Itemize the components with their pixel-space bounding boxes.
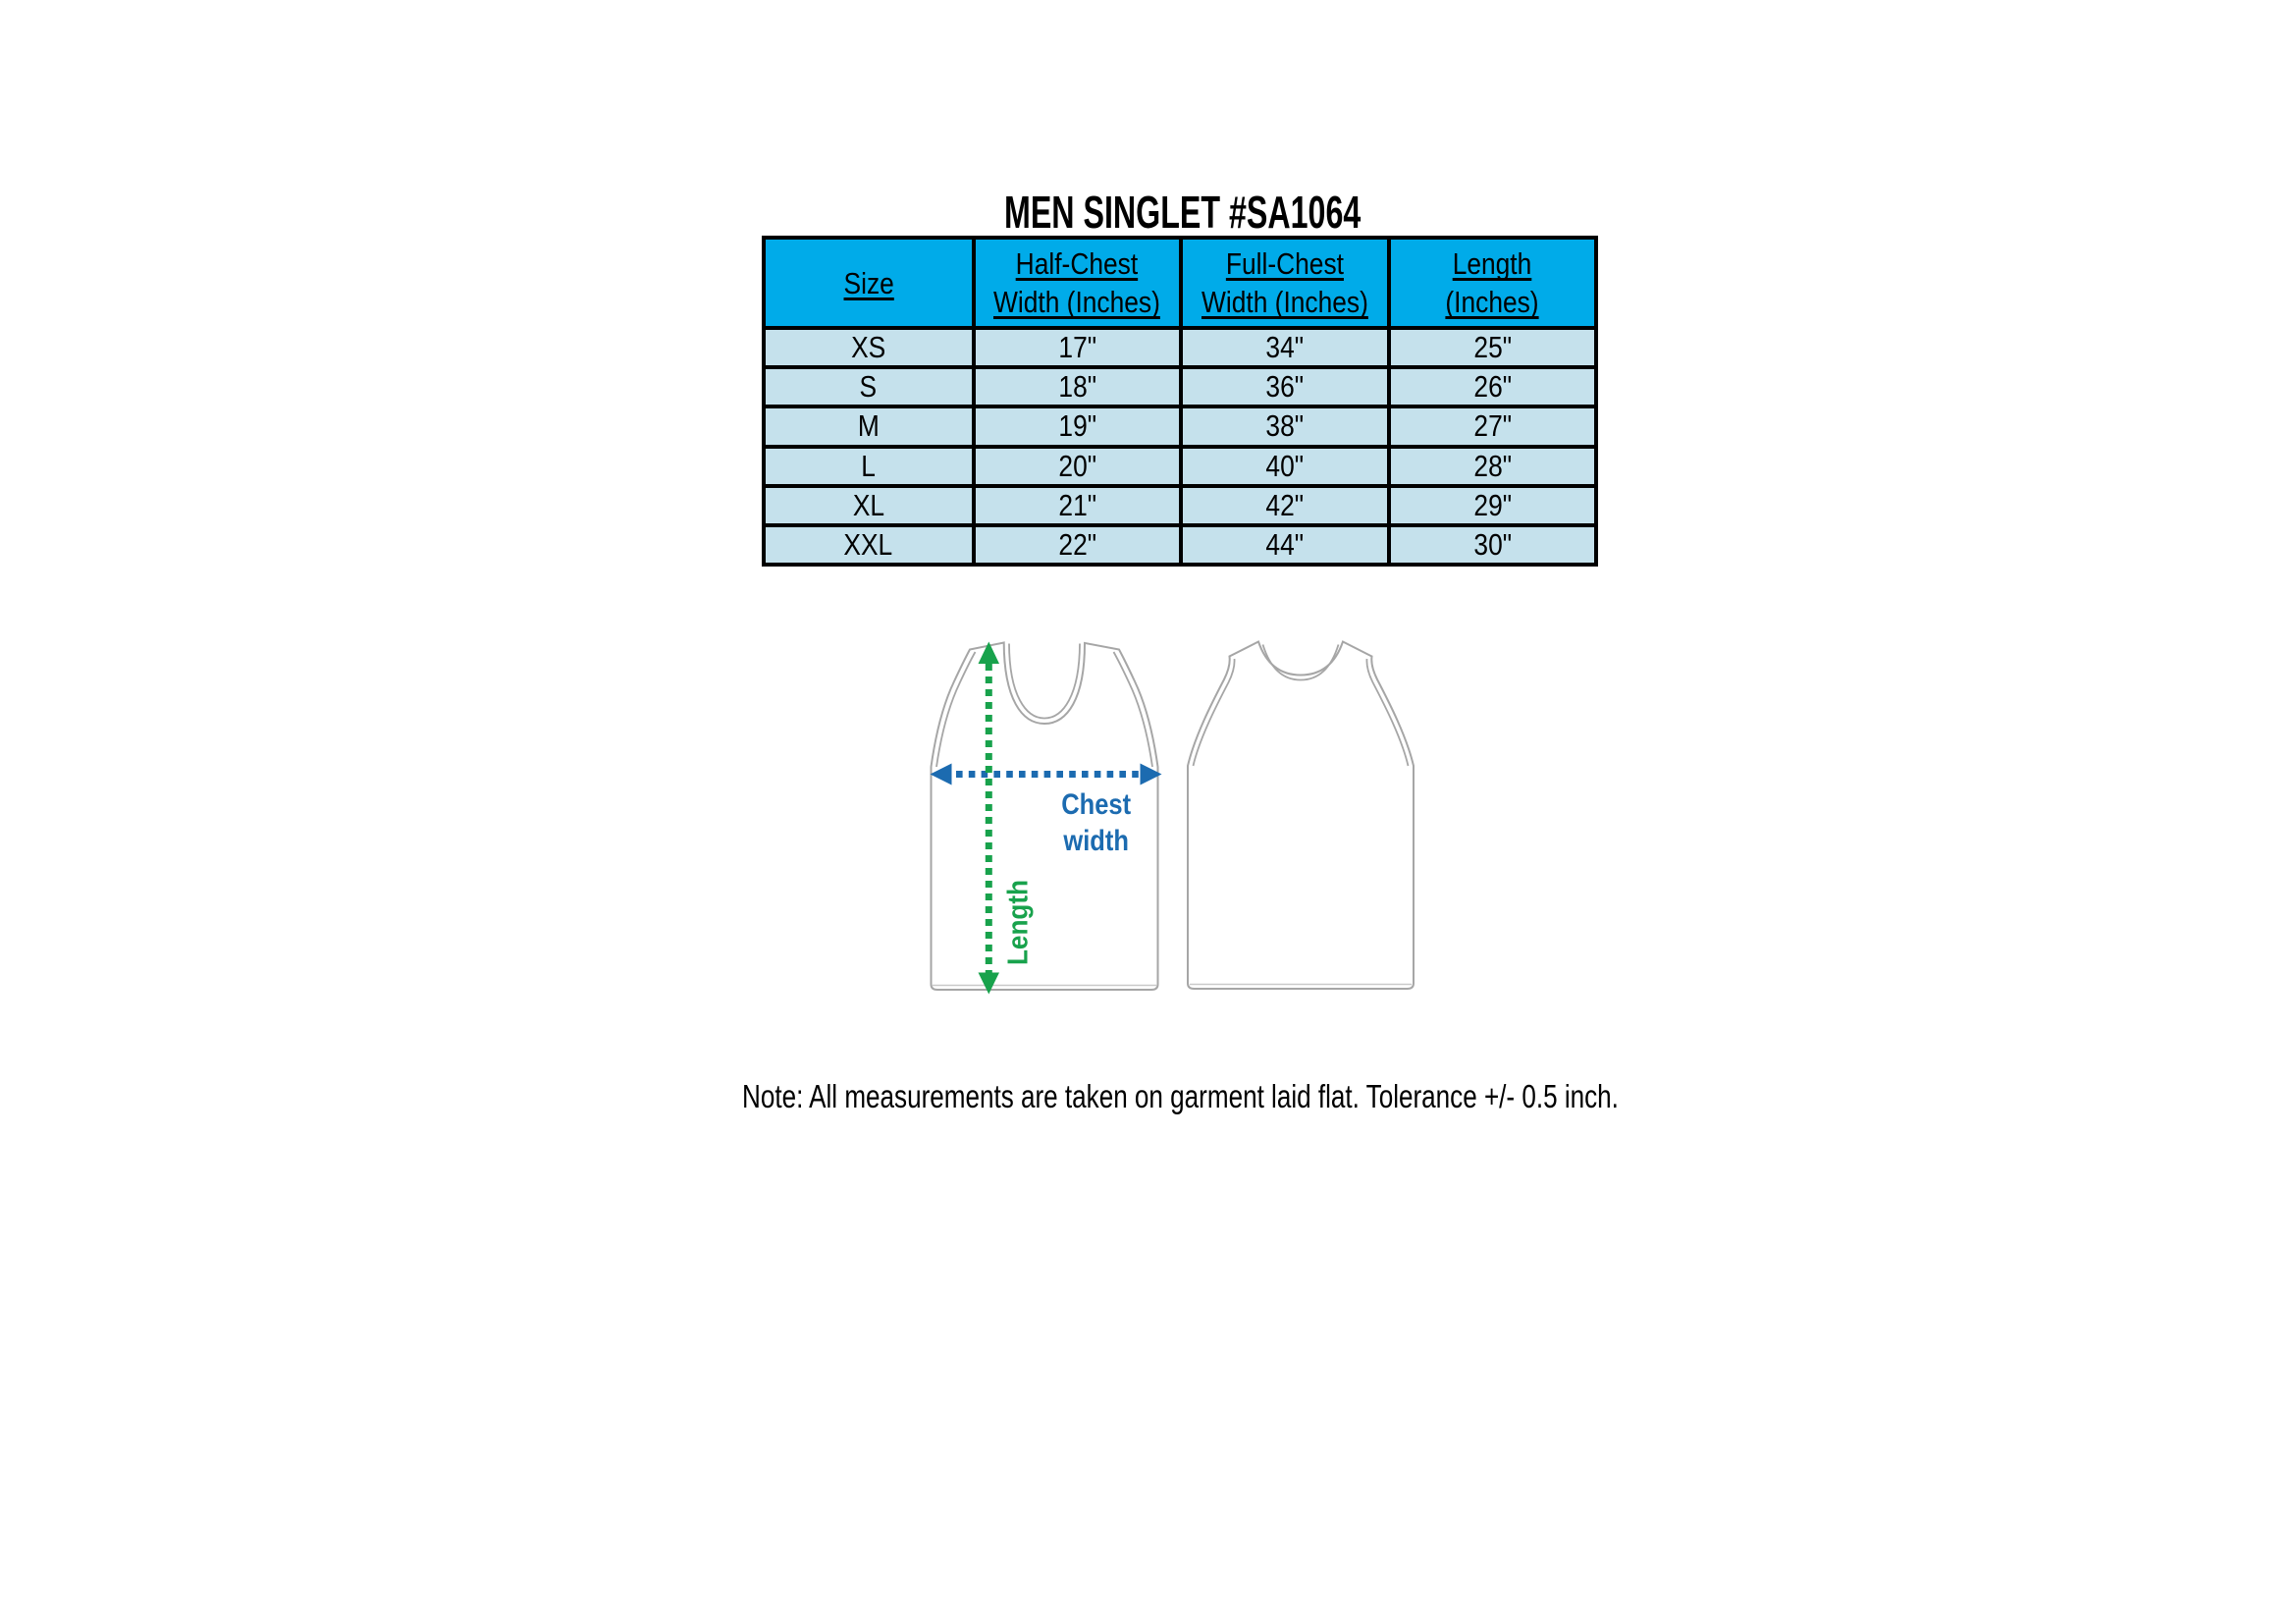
svg-text:Length: Length <box>1001 880 1034 965</box>
